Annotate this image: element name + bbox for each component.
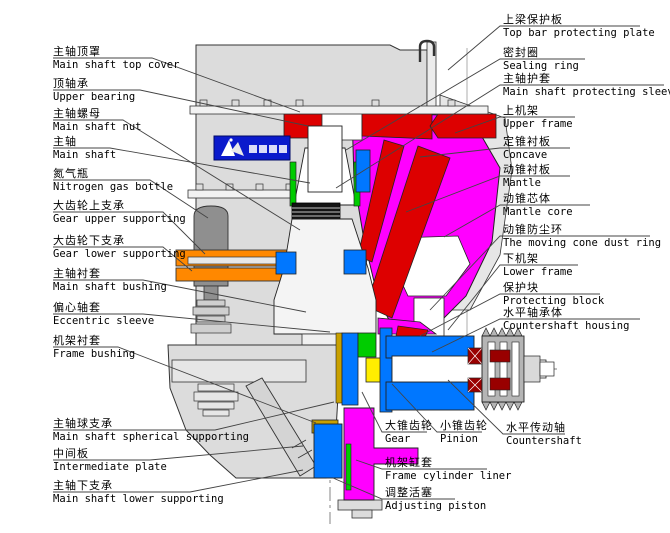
label-countershaft-housing: 水平轴承体Countershaft housing: [503, 306, 629, 332]
label-main-shaft-lower-supporting: 主轴下支承Main shaft lower supporting: [53, 479, 224, 505]
label-cn: 大锥齿轮: [385, 419, 433, 432]
label-cn: 大齿轮下支承: [53, 234, 186, 247]
label-concave: 定锥衬板Concave: [503, 135, 551, 161]
label-lower-frame: 下机架Lower frame: [503, 252, 573, 278]
label-cn: 下机架: [503, 252, 573, 265]
label-protecting-block: 保护块Protecting block: [503, 281, 604, 307]
label-en: Main shaft spherical supporting: [53, 432, 249, 443]
label-en: Main shaft top cover: [53, 60, 179, 71]
label-en: Pinion: [440, 434, 488, 445]
label-gear: 大锥齿轮Gear: [385, 419, 433, 445]
label-en: Gear: [385, 434, 433, 445]
label-main-shaft-bushing: 主轴衬套Main shaft bushing: [53, 267, 167, 293]
label-cn: 定锥衬板: [503, 135, 551, 148]
gear-supporting-shapes: [176, 250, 292, 281]
label-cn: 调整活塞: [385, 486, 486, 499]
label-moving-cone-dust-ring: 动锥防尘环The moving cone dust ring: [503, 223, 661, 249]
label-mantle: 动锥衬板Mantle: [503, 163, 551, 189]
label-cn: 机架缸套: [385, 456, 511, 469]
label-cn: 密封圈: [503, 46, 579, 59]
label-en: Main shaft nut: [53, 122, 142, 133]
label-cn: 主轴顶罩: [53, 45, 179, 58]
label-cn: 动锥衬板: [503, 163, 551, 176]
label-en: Main shaft lower supporting: [53, 494, 224, 505]
label-en: Main shaft bushing: [53, 282, 167, 293]
label-main-shaft-nut: 主轴螺母Main shaft nut: [53, 107, 142, 133]
label-frame-cylinder-liner: 机架缸套Frame cylinder liner: [385, 456, 511, 482]
label-en: Countershaft housing: [503, 321, 629, 332]
label-cn: 中间板: [53, 447, 167, 460]
label-en: Eccentric sleeve: [53, 316, 154, 327]
label-top-bar-protecting-plate: 上梁保护板Top bar protecting plate: [503, 13, 655, 39]
pulley-shape: [482, 328, 554, 410]
label-adjusting-piston: 调整活塞Adjusting piston: [385, 486, 486, 512]
label-cn: 上梁保护板: [503, 13, 655, 26]
label-en: Adjusting piston: [385, 501, 486, 512]
label-en: Frame bushing: [53, 349, 135, 360]
label-cn: 主轴下支承: [53, 479, 224, 492]
brand-logo: [214, 136, 290, 160]
label-cn: 上机架: [503, 104, 573, 117]
label-cn: 主轴螺母: [53, 107, 142, 120]
label-cn: 大齿轮上支承: [53, 199, 186, 212]
label-intermediate-plate: 中间板Intermediate plate: [53, 447, 167, 473]
label-cn: 主轴: [53, 135, 116, 148]
label-en: Upper bearing: [53, 92, 135, 103]
label-main-shaft-top-cover: 主轴顶罩Main shaft top cover: [53, 45, 179, 71]
label-cn: 主轴衬套: [53, 267, 167, 280]
label-en: Upper frame: [503, 119, 573, 130]
label-cn: 水平轴承体: [503, 306, 629, 319]
label-gear-upper-supporting: 大齿轮上支承Gear upper supporting: [53, 199, 186, 225]
label-countershaft: 水平传动轴Countershaft: [506, 421, 582, 447]
label-eccentric-sleeve: 偏心轴套Eccentric sleeve: [53, 301, 154, 327]
label-en: Mantle core: [503, 207, 573, 218]
label-gear-lower-supporting: 大齿轮下支承Gear lower supporting: [53, 234, 186, 260]
label-cn: 机架衬套: [53, 334, 135, 347]
label-nitrogen-gas-bottle: 氮气瓶Nitrogen gas bottle: [53, 167, 173, 193]
label-cn: 偏心轴套: [53, 301, 154, 314]
eccentric-sleeve-shape: [342, 333, 358, 405]
cone-crusher-diagram: 主轴顶罩Main shaft top cover 顶轴承Upper bearin…: [0, 0, 670, 533]
label-en: Concave: [503, 150, 551, 161]
label-main-shaft: 主轴Main shaft: [53, 135, 116, 161]
label-en: Lower frame: [503, 267, 573, 278]
label-pinion: 小锥齿轮Pinion: [440, 419, 488, 445]
label-cn: 水平传动轴: [506, 421, 582, 434]
label-frame-bushing: 机架衬套Frame bushing: [53, 334, 135, 360]
label-upper-frame: 上机架Upper frame: [503, 104, 573, 130]
label-cn: 保护块: [503, 281, 604, 294]
label-en: Frame cylinder liner: [385, 471, 511, 482]
label-en: Mantle: [503, 178, 551, 189]
label-en: Sealing ring: [503, 61, 579, 72]
label-cn: 主轴球支承: [53, 417, 249, 430]
label-en: Gear lower supporting: [53, 249, 186, 260]
main-shaft-nut-shape: [292, 203, 340, 219]
label-en: Gear upper supporting: [53, 214, 186, 225]
label-main-shaft-protecting-sleeve: 主轴护套Main shaft protecting sleeve: [503, 72, 670, 98]
label-sealing-ring: 密封圈Sealing ring: [503, 46, 579, 72]
protecting-sleeve-liner: [290, 162, 296, 206]
label-en: Intermediate plate: [53, 462, 167, 473]
label-upper-bearing: 顶轴承Upper bearing: [53, 77, 135, 103]
label-en: Nitrogen gas bottle: [53, 182, 173, 193]
label-cn: 动锥芯体: [503, 192, 573, 205]
label-en: Main shaft: [53, 150, 116, 161]
label-cn: 氮气瓶: [53, 167, 173, 180]
label-en: The moving cone dust ring: [503, 238, 661, 249]
label-en: Top bar protecting plate: [503, 28, 655, 39]
label-main-shaft-spherical-supporting: 主轴球支承Main shaft spherical supporting: [53, 417, 249, 443]
frame-cylinder-liner-shape: [346, 444, 351, 490]
label-cn: 动锥防尘环: [503, 223, 661, 236]
label-en: Countershaft: [506, 436, 582, 447]
label-cn: 小锥齿轮: [440, 419, 488, 432]
label-mantle-core: 动锥芯体Mantle core: [503, 192, 573, 218]
label-cn: 顶轴承: [53, 77, 135, 90]
countershaft-housing-shape: [386, 336, 474, 358]
label-cn: 主轴护套: [503, 72, 670, 85]
label-en: Main shaft protecting sleeve: [503, 87, 670, 98]
